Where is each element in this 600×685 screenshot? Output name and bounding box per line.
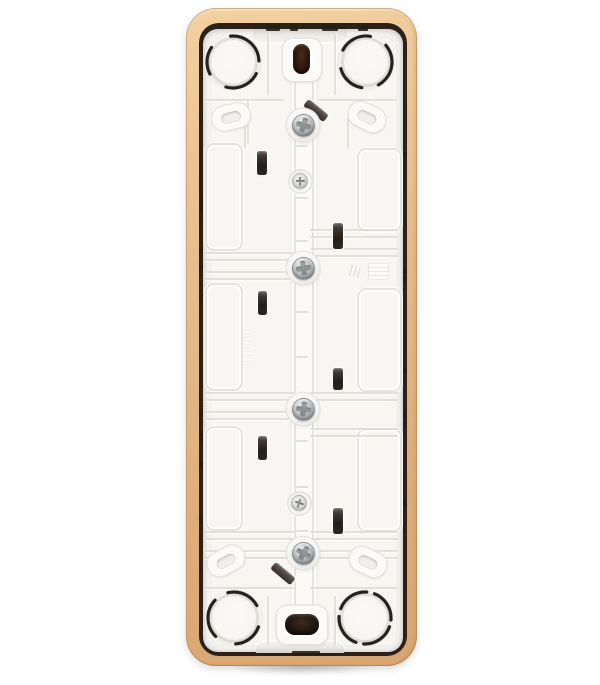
ridge-line-horizontal — [310, 229, 398, 231]
phillips-cross — [289, 539, 318, 568]
rail-tick — [296, 197, 308, 199]
seam-notch — [199, 433, 203, 441]
screw-large — [287, 252, 319, 284]
ridge-line-horizontal — [205, 278, 294, 280]
oval-boss — [345, 98, 390, 136]
ridge-line-horizontal — [205, 99, 284, 101]
ridge-line-horizontal — [310, 531, 398, 533]
phillips-cross — [293, 174, 307, 188]
claw-slot — [258, 291, 267, 315]
screw-head — [292, 542, 315, 565]
product-photo — [0, 0, 600, 685]
seam-notch — [199, 113, 203, 121]
seam-notch — [403, 368, 407, 373]
module-panel — [205, 426, 243, 531]
rail-tick — [296, 145, 308, 147]
ridge-line-horizontal — [310, 538, 398, 540]
phillips-cross — [291, 397, 315, 421]
knockout-circle — [204, 33, 262, 91]
seam-notch — [199, 515, 203, 523]
ridge-line-horizontal — [205, 252, 294, 254]
screw-head — [292, 173, 308, 189]
rail-tick — [296, 240, 308, 242]
ridge-line-horizontal — [205, 399, 294, 401]
seam-notch — [199, 294, 203, 301]
oval-boss-hole — [357, 553, 380, 571]
ridge-line-horizontal — [310, 248, 398, 250]
rail-tick — [296, 440, 308, 442]
screw-head — [292, 114, 315, 137]
seam-notch — [403, 410, 407, 418]
rail-tick — [296, 486, 308, 488]
oval-boss-hole — [215, 551, 238, 570]
ridge-line-horizontal — [310, 428, 398, 430]
module-panel — [205, 283, 243, 391]
oval-boss-hole — [356, 108, 379, 126]
ridge-line-horizontal — [205, 531, 294, 533]
claw-slot — [333, 223, 343, 249]
ridge-line-horizontal — [310, 255, 398, 257]
knockout-circle — [336, 589, 394, 647]
screw-head — [292, 398, 315, 421]
seam-notch — [199, 408, 203, 416]
module-panel — [357, 288, 402, 392]
seam-notch — [290, 26, 298, 31]
oval-boss-hole — [220, 109, 242, 125]
ridge-line-horizontal — [310, 399, 398, 401]
ridge-line-vertical — [267, 33, 269, 95]
seam-notch — [403, 276, 407, 282]
screw-small — [287, 491, 312, 516]
ridge-line-horizontal — [310, 435, 398, 437]
ridge-line-vertical — [347, 118, 349, 149]
oval-boss — [346, 543, 391, 581]
claw-slot — [333, 508, 343, 534]
ridge-line-horizontal — [318, 99, 397, 101]
ridge-line-horizontal — [205, 259, 294, 261]
phillips-cross — [290, 494, 308, 512]
knockout-circle — [205, 589, 263, 647]
claw-slot — [257, 151, 267, 175]
phillips-cross — [291, 256, 315, 280]
ridge-line-vertical — [267, 596, 269, 645]
seam-notch — [199, 264, 203, 272]
seam-notch — [292, 651, 320, 655]
module-panel — [357, 148, 402, 232]
module-panel — [205, 143, 243, 251]
seam-notch — [403, 500, 407, 507]
ridge-line-horizontal — [310, 236, 398, 238]
molded-features-layer — [0, 0, 600, 685]
seam-notch — [403, 152, 407, 158]
rail-tick — [296, 311, 308, 313]
rail-tick — [296, 530, 308, 532]
seam-notch — [199, 199, 203, 212]
ridge-line-horizontal — [205, 392, 294, 394]
screw-large — [287, 393, 319, 425]
ridge-line-vertical — [334, 33, 336, 95]
seam-notch — [199, 248, 203, 254]
seam-notch — [358, 26, 368, 31]
module-panel — [357, 428, 402, 532]
screw-large — [287, 537, 319, 569]
screw-head — [291, 495, 307, 511]
seam-notch — [199, 462, 203, 468]
ridge-line-horizontal — [310, 392, 398, 394]
seam-notch — [322, 26, 338, 31]
screw-head — [292, 257, 315, 280]
screw-small — [288, 169, 313, 194]
oval-boss — [204, 541, 249, 580]
ridge-line-horizontal — [205, 418, 294, 420]
embossed-rib-texture — [243, 330, 251, 367]
phillips-cross — [290, 112, 316, 138]
seam-notch — [403, 421, 407, 427]
seam-notch — [403, 267, 407, 274]
knockout-circle — [337, 33, 395, 91]
embossed-tick-mark — [357, 267, 362, 278]
ridge-line-horizontal — [205, 538, 294, 540]
seam-notch — [266, 26, 280, 31]
ridge-line-horizontal — [205, 271, 294, 273]
claw-slot — [258, 436, 267, 460]
rail-tick — [296, 356, 308, 358]
claw-slot — [333, 368, 343, 390]
ridge-line-horizontal — [205, 411, 294, 413]
screw-large — [287, 109, 319, 141]
embossed-logo-mark — [368, 263, 389, 280]
